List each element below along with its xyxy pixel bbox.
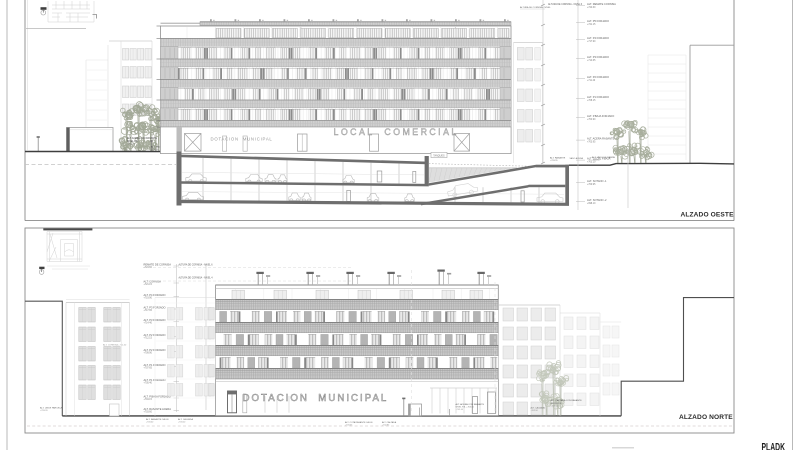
- svg-text:ALT. P3 FORJADO: ALT. P3 FORJADO: [144, 305, 166, 309]
- svg-text:ALT. P2 FORJADO: ALT. P2 FORJADO: [144, 333, 166, 337]
- svg-text:ALZADO NORTE: ALZADO NORTE: [679, 414, 733, 421]
- svg-text:VADO ACERA: VADO ACERA: [570, 157, 584, 160]
- svg-text:+711.40: +711.40: [587, 80, 596, 82]
- svg-text:ALT. P3 FORJADO: ALT. P3 FORJADO: [587, 55, 609, 59]
- svg-text:ALT. P2 FORJADO: ALT. P2 FORJADO: [144, 348, 166, 352]
- svg-text:+714.65: +714.65: [587, 60, 596, 62]
- svg-text:DOTACION MUNICIPAL: DOTACION MUNICIPAL: [211, 137, 273, 142]
- svg-text:+704.90: +704.90: [587, 119, 596, 121]
- svg-text:ALT. P1 FORJADO: ALT. P1 FORJADO: [587, 95, 609, 99]
- svg-text:ALT. P2 FORJADO: ALT. P2 FORJADO: [587, 75, 609, 79]
- svg-text:ALT. P4 FORJADO: ALT. P4 FORJADO: [144, 293, 166, 297]
- svg-text:ALTURA DE CORNISA - NIVEL 4: ALTURA DE CORNISA - NIVEL 4: [179, 276, 214, 279]
- svg-text:+703.10: +703.10: [587, 161, 596, 163]
- svg-text:+703.60: +703.60: [144, 412, 153, 414]
- svg-text:LOCAL COMERCIAL: LOCAL COMERCIAL: [334, 127, 459, 137]
- svg-text:ALT. CALZADA CON RASANTE: ALT. CALZADA CON RASANTE: [551, 399, 583, 402]
- svg-text:+724.60: +724.60: [587, 7, 596, 9]
- svg-text:+703.95: +703.95: [550, 160, 558, 162]
- svg-text:+712.15: +712.15: [144, 338, 153, 340]
- svg-text:+709.90: +709.90: [144, 353, 153, 355]
- svg-text:+705.40: +705.40: [144, 383, 153, 385]
- svg-text:DOTACION MUNICIPAL: DOTACION MUNICIPAL: [243, 393, 389, 404]
- svg-text:ALT. P1 FORJADO: ALT. P1 FORJADO: [144, 378, 166, 382]
- svg-text:+704.15: +704.15: [144, 399, 153, 401]
- svg-text:ALT. P5 FORJADO: ALT. P5 FORJADO: [587, 19, 609, 23]
- svg-text:+721.15: +721.15: [144, 284, 153, 286]
- svg-text:+717.90: +717.90: [587, 41, 596, 43]
- svg-text:ALT. SOTANO -1: ALT. SOTANO -1: [587, 179, 607, 183]
- svg-text:ALTURA DE CORNISA - NIVEL 6: ALTURA DE CORNISA - NIVEL 6: [179, 263, 214, 266]
- svg-text:+703.20: +703.20: [40, 410, 48, 412]
- svg-text:ALTURA DE CORNISA - NIVEL 6: ALTURA DE CORNISA - NIVEL 6: [548, 3, 583, 6]
- svg-text:+702.90: +702.90: [531, 410, 539, 412]
- svg-text:ALT. CORNISA +712.40: ALT. CORNISA +712.40: [103, 344, 127, 347]
- svg-text:+708.15: +708.15: [587, 100, 596, 102]
- svg-text:ALT. ACERA CON RASANTE: ALT. ACERA CON RASANTE: [127, 137, 157, 140]
- svg-text:+703.40: +703.40: [146, 422, 154, 424]
- svg-text:+707.65: +707.65: [144, 368, 153, 370]
- svg-text:ALT. P3 FORJADO: ALT. P3 FORJADO: [144, 318, 166, 322]
- svg-text:ALT. LINDE PARCELA: ALT. LINDE PARCELA: [40, 406, 62, 409]
- svg-text:+703.10: +703.10: [551, 405, 559, 407]
- svg-text:+721.15: +721.15: [587, 24, 596, 26]
- svg-text:REMATE DE CORNISA: REMATE DE CORNISA: [144, 262, 172, 266]
- svg-text:+702.85: +702.85: [382, 424, 390, 426]
- svg-text:+703.40: +703.40: [456, 409, 464, 411]
- svg-text:+703.95: +703.95: [587, 141, 596, 143]
- svg-text:ALT. REMATE CORNISA: ALT. REMATE CORNISA: [587, 2, 616, 6]
- svg-text:ALT. P1 FORJADO: ALT. P1 FORJADO: [144, 363, 166, 367]
- svg-text:ACERA P.B.: ACERA P.B.: [551, 402, 563, 405]
- svg-text:+719.90: +719.90: [144, 298, 153, 300]
- svg-text:ALT. VADO DE RAMPA: ALT. VADO DE RAMPA: [592, 156, 615, 159]
- svg-text:+703.05: +703.05: [345, 424, 353, 426]
- svg-text:+698.10: +698.10: [587, 203, 596, 205]
- svg-text:+703.60: +703.60: [592, 159, 600, 161]
- svg-text:+707.30: +707.30: [127, 144, 135, 146]
- svg-text:ALT. SOTANO -2: ALT. SOTANO -2: [587, 198, 607, 202]
- svg-text:+717.65: +717.65: [144, 310, 153, 312]
- svg-text:ALT. ACERA CON RASANTE: ALT. ACERA CON RASANTE: [456, 403, 485, 406]
- svg-text:PLADK: PLADK: [762, 442, 786, 450]
- svg-text:+700.95: +700.95: [587, 184, 596, 186]
- svg-text:+703.20: +703.20: [178, 422, 186, 424]
- svg-text:TANQUES: TANQUES: [433, 154, 445, 157]
- svg-text:+714.40: +714.40: [144, 323, 153, 325]
- svg-text:ALT. ACERA RASANTE: ALT. ACERA RASANTE: [587, 137, 615, 141]
- svg-text:ALTURA DE CORNISA - NIVEL: ALTURA DE CORNISA - NIVEL: [520, 6, 551, 9]
- svg-text:ALZADO OESTE: ALZADO OESTE: [681, 212, 735, 219]
- svg-text:ALT. CORNISA: ALT. CORNISA: [144, 279, 162, 283]
- svg-text:ALT. P.BAJA FORJADO: ALT. P.BAJA FORJADO: [587, 114, 614, 118]
- svg-text:ALT. RASANTE ACERA: ALT. RASANTE ACERA: [144, 407, 172, 411]
- svg-text:ALT. P4 FORJADO: ALT. P4 FORJADO: [587, 36, 609, 40]
